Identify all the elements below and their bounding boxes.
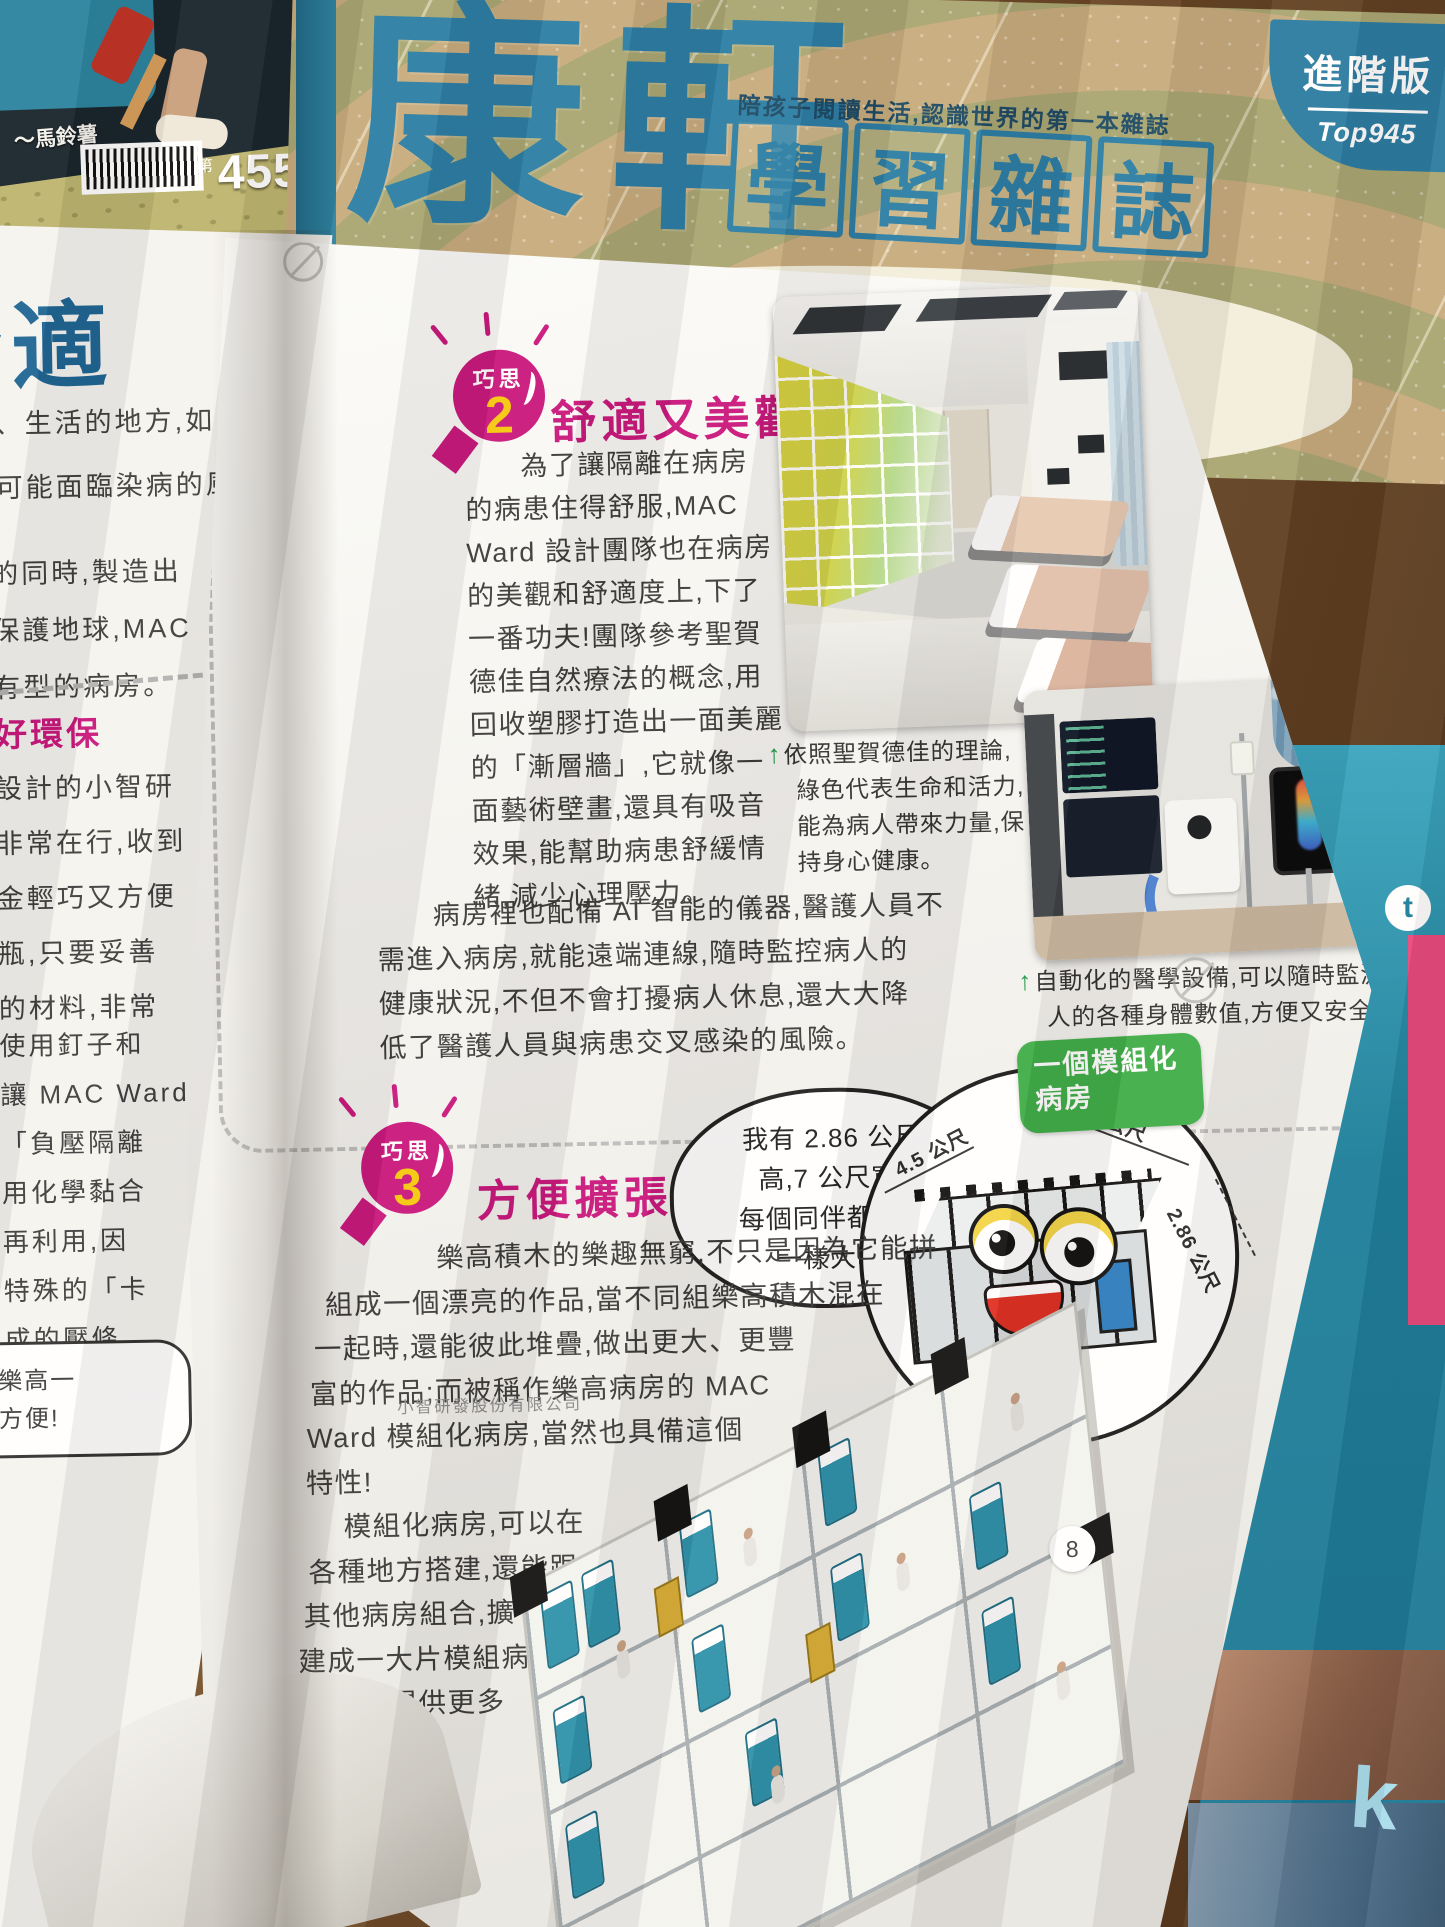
brand-logo: Top945	[1303, 116, 1417, 150]
ward-person	[770, 1772, 785, 1806]
wall-monitor	[1078, 435, 1105, 454]
hospital-bed	[969, 495, 1131, 557]
issue-number-row: 第 455	[196, 143, 301, 202]
ward-person	[1056, 1668, 1071, 1702]
subtitle-char-box: 雜	[970, 129, 1092, 251]
iv-bag	[1229, 741, 1255, 776]
ward-bed	[565, 1809, 605, 1900]
idea-bulb-badge-3: 巧思 3	[360, 1121, 454, 1215]
photo1-caption: ↑依照聖賀德佳的理論, 綠色代表生命和活力, 能為病人帶來力量,保 持身心健康。	[767, 731, 1026, 881]
ward-person	[1010, 1400, 1025, 1434]
barcode-icon	[80, 141, 204, 195]
edition-badge-divider	[1307, 107, 1427, 113]
module-green-badge: 一個模組化 病房	[1016, 1032, 1205, 1134]
section2-paragraph-1: 為了讓隔離在病房 的病患住得舒服,MAC Ward 設計團隊也在病房 的美觀和舒…	[464, 440, 787, 919]
left-page-heading: 舒適	[0, 268, 116, 411]
subtitle-char-box: 誌	[1092, 136, 1214, 258]
edition-badge: 進階版 Top945	[1266, 19, 1445, 172]
left-page-paragraph: 、生活的地方,如 可能面臨染病的風	[0, 388, 236, 520]
book-logo-circle: t	[1385, 885, 1431, 931]
idea-bulb-badge-2: 巧思 2	[452, 349, 546, 443]
vital-monitor-screen	[1063, 795, 1163, 877]
ward-bed	[830, 1552, 870, 1643]
ward-bed	[552, 1694, 592, 1785]
subtitle-char-box: 學	[727, 116, 849, 238]
modular-ward-isometric-illustration	[375, 1420, 1225, 1927]
magazine-photo-scene: 〜馬鈴薯 第 455 康軒 陪孩子閱讀生活,認識世界的第一本雜誌 學 習 雜 誌…	[0, 0, 1445, 1927]
subtitle-char-box: 習	[848, 122, 970, 244]
ward-person	[742, 1535, 757, 1569]
ward-yellow-cabinet	[805, 1622, 835, 1684]
illustration-credit: 小智研發股份有限公司	[397, 1390, 582, 1418]
ward-bed	[969, 1480, 1009, 1571]
left-page-speech-bubble: 樂高一 方便!	[0, 1339, 193, 1459]
ward-bed	[691, 1623, 731, 1714]
left-page-subheading: 好環保	[0, 706, 102, 756]
edition-badge-label: 進階版	[1288, 41, 1436, 103]
ward-yellow-cabinet	[654, 1576, 684, 1638]
green-up-arrow-icon: ↑	[1018, 966, 1033, 996]
ward-person	[616, 1647, 631, 1681]
cover-subtitle-boxes: 學 習 雜 誌	[727, 116, 1215, 259]
cover-spine-strip	[296, 0, 336, 258]
hospital-corridor-photo	[772, 283, 1153, 732]
section3-heading: 方便擴張	[476, 1161, 673, 1229]
book-letter-glyph: k	[1347, 1748, 1402, 1850]
photo-watermark	[1271, 684, 1343, 699]
ward-person	[895, 1559, 910, 1593]
ward-bed	[981, 1595, 1021, 1686]
green-up-arrow-icon: ↑	[767, 739, 782, 769]
book-photo-panel	[1188, 1803, 1445, 1927]
vital-monitor-screen	[1059, 717, 1158, 793]
hospital-bed	[987, 564, 1154, 634]
book-pink-edge	[1408, 935, 1445, 1325]
wall-monitor	[1047, 468, 1070, 485]
wall-tv	[1059, 350, 1108, 380]
section2-paragraph-2: 病房裡也配備 AI 智能的儀器,醫護人員不 需進入病房,就能遠端連線,隨時監控病…	[376, 883, 947, 1071]
book-photo-panel	[1188, 1650, 1445, 1800]
bulb-number: 3	[361, 1165, 454, 1211]
ward-bed	[581, 1558, 621, 1649]
bulb-number: 2	[453, 393, 546, 439]
left-page-paragraph: 設計的小智研 非常在行,收到 金輕巧又方便 瓶,只要妥善 的材料,非常	[0, 759, 190, 1037]
dimension-line	[1215, 1179, 1256, 1256]
issue-prefix: 第	[197, 158, 214, 176]
